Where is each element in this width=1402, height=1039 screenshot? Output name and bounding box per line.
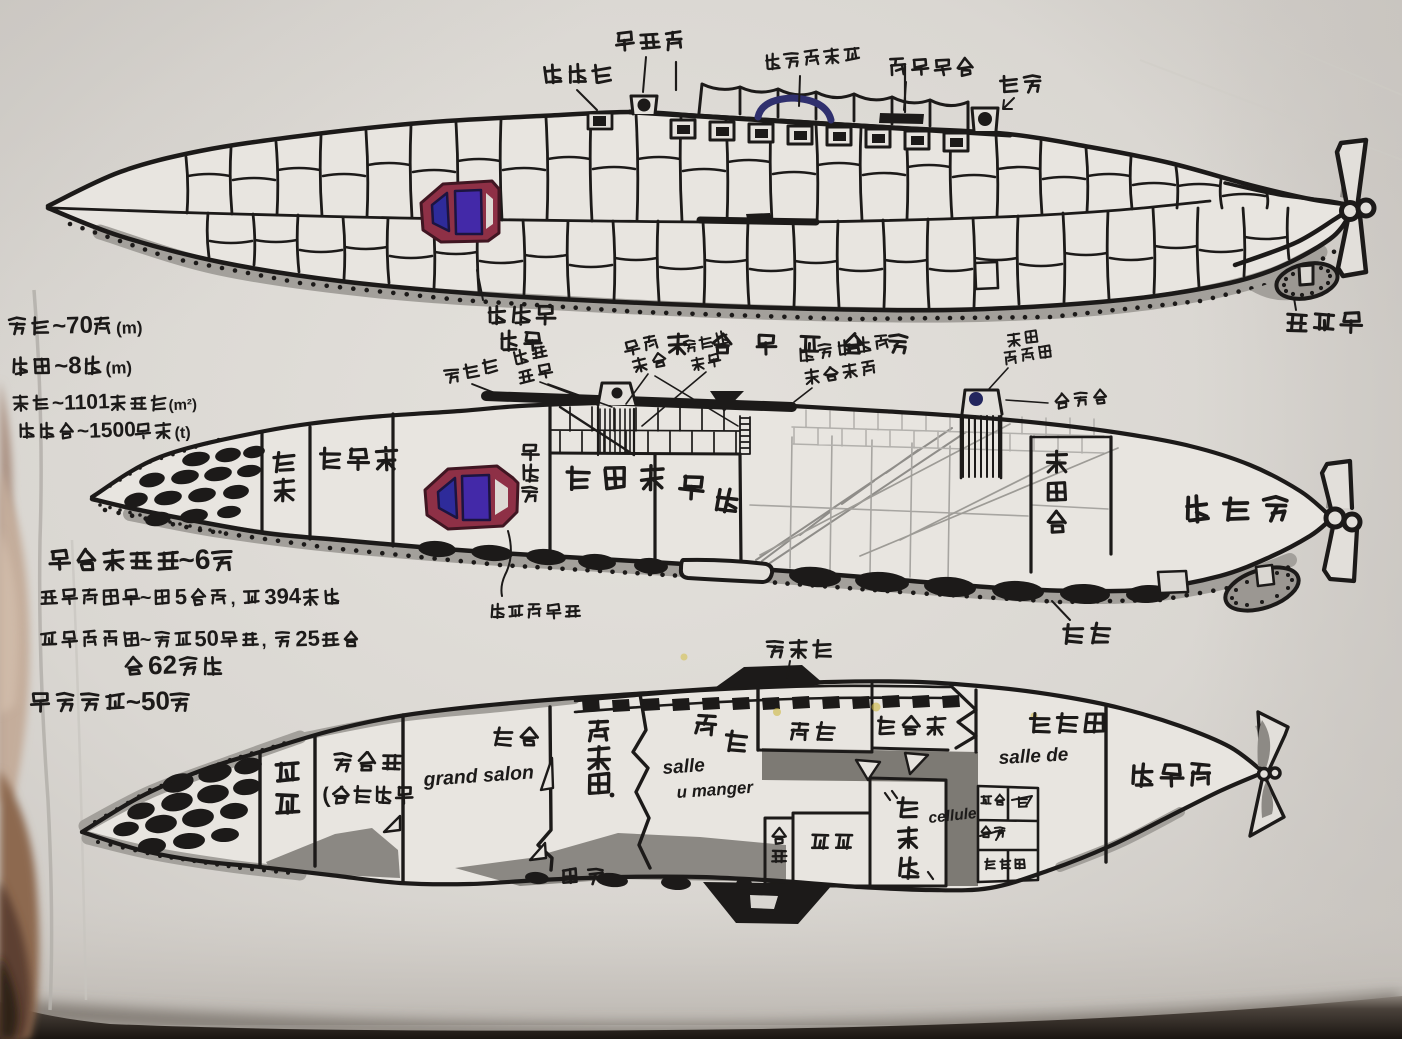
svg-text:(m): (m) — [105, 358, 132, 378]
svg-text:(m): (m) — [116, 318, 143, 338]
svg-text:5: 5 — [174, 584, 187, 609]
svg-text:394: 394 — [264, 583, 302, 609]
svg-text:,: , — [261, 630, 267, 650]
svg-text:62: 62 — [148, 649, 178, 680]
svg-text:~6: ~6 — [178, 544, 211, 576]
svg-text:salle de: salle de — [998, 744, 1069, 769]
svg-text:(t): (t) — [174, 425, 191, 443]
svg-text:~50: ~50 — [125, 685, 170, 717]
svg-text:salle: salle — [662, 755, 706, 779]
svg-text:~: ~ — [139, 629, 151, 651]
svg-text:~1101: ~1101 — [51, 390, 110, 415]
svg-text:50: 50 — [194, 626, 219, 652]
svg-text:25: 25 — [295, 626, 320, 652]
svg-text:,: , — [230, 588, 236, 608]
svg-text:~8: ~8 — [54, 352, 82, 380]
svg-text:~: ~ — [139, 587, 151, 609]
svg-text:(m²): (m²) — [168, 396, 197, 414]
svg-text:~1500: ~1500 — [76, 418, 136, 443]
svg-text:~70: ~70 — [52, 312, 94, 340]
